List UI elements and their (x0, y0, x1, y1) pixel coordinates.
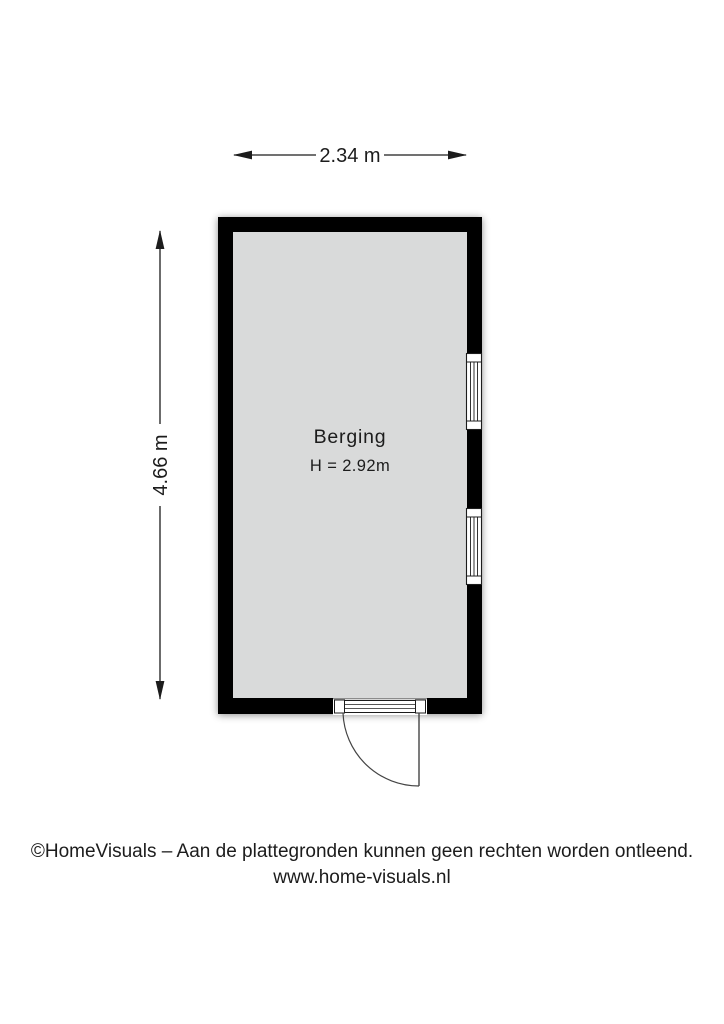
door-threshold (345, 701, 416, 713)
height-dimension-label: 4.66 m (150, 434, 172, 495)
door-jamb-right (416, 700, 426, 713)
website-text: www.home-visuals.nl (0, 865, 724, 891)
arrowhead-left-icon (233, 151, 252, 160)
copyright-text: ©HomeVisuals – Aan de plattegronden kunn… (0, 839, 724, 865)
door-jamb-left (335, 700, 345, 713)
door (333, 698, 427, 786)
arrowhead-down-icon (156, 681, 165, 700)
footer: ©HomeVisuals – Aan de plattegronden kunn… (0, 839, 724, 891)
window-upper (467, 354, 482, 430)
window-lower (467, 509, 482, 585)
room-name-label: Berging (314, 426, 387, 448)
room-height-label: H = 2.92m (310, 457, 390, 475)
arrowhead-up-icon (156, 230, 165, 249)
door-swing-arc (343, 713, 419, 786)
width-dimension-label: 2.34 m (319, 145, 380, 167)
arrowhead-right-icon (448, 151, 467, 160)
